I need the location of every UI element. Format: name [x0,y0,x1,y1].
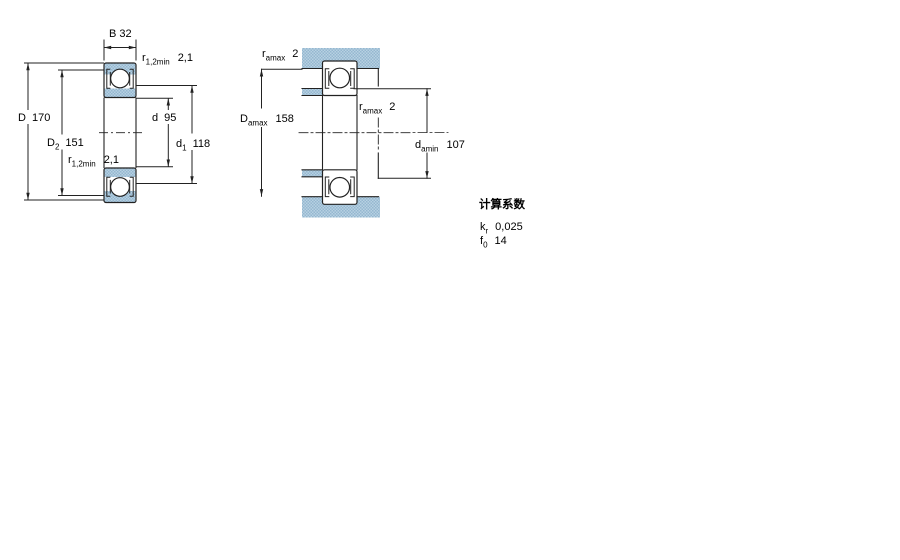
calculation-factors: 计算系数 kr0,025 f014 [479,197,525,250]
arrow-da-down [425,171,428,178]
arrow-d-down [167,160,170,167]
label-d1: d1118 [176,138,210,153]
factor-f0: f014 [480,235,507,250]
arrow-D2-down [60,188,63,195]
arrow-B-left [104,46,111,49]
bearing-left-top-section [104,63,136,98]
technical-drawing: B 32 r1,2min2,1 D170 D2151 d95 d1118 r1,… [0,0,660,260]
dim-Da [262,69,303,196]
arrow-D-up [26,63,29,70]
arrow-D2-up [60,70,63,77]
label-ra-top: ramax2 [262,48,298,63]
arrow-d-up [167,98,170,105]
label-ra-mid: ramax2 [359,101,395,116]
factor-kr: kr0,025 [480,221,523,236]
calculation-factors-heading: 计算系数 [479,197,525,211]
arrow-Da-up [260,69,263,76]
label-r-mid: r1,2min2,1 [68,154,119,169]
arrow-d1-up [190,86,193,93]
arrow-D-down [26,193,29,200]
shaft-shoulder-bottom [302,170,323,177]
mounting-view [260,48,448,218]
label-r-top: r1,2min2,1 [142,52,193,67]
shaft-shoulder-top [302,89,323,96]
arrow-B-right [129,46,136,49]
arrow-Da-down [260,189,263,196]
arrow-da-up [425,89,428,96]
bearing-section-bottom [323,170,358,205]
bearing-drawing-page: B 32 r1,2min2,1 D170 D2151 d95 d1118 r1,… [0,0,900,560]
label-B: B 32 [109,28,132,40]
bearing-section-top [323,61,358,96]
bearing-left-bottom-section [104,168,136,203]
dim-B [104,40,136,61]
dim-D2 [58,70,104,196]
dim-D [24,63,104,200]
arrow-d1-down [190,176,193,183]
label-D: D170 [18,112,50,124]
label-d: d95 [152,112,176,124]
